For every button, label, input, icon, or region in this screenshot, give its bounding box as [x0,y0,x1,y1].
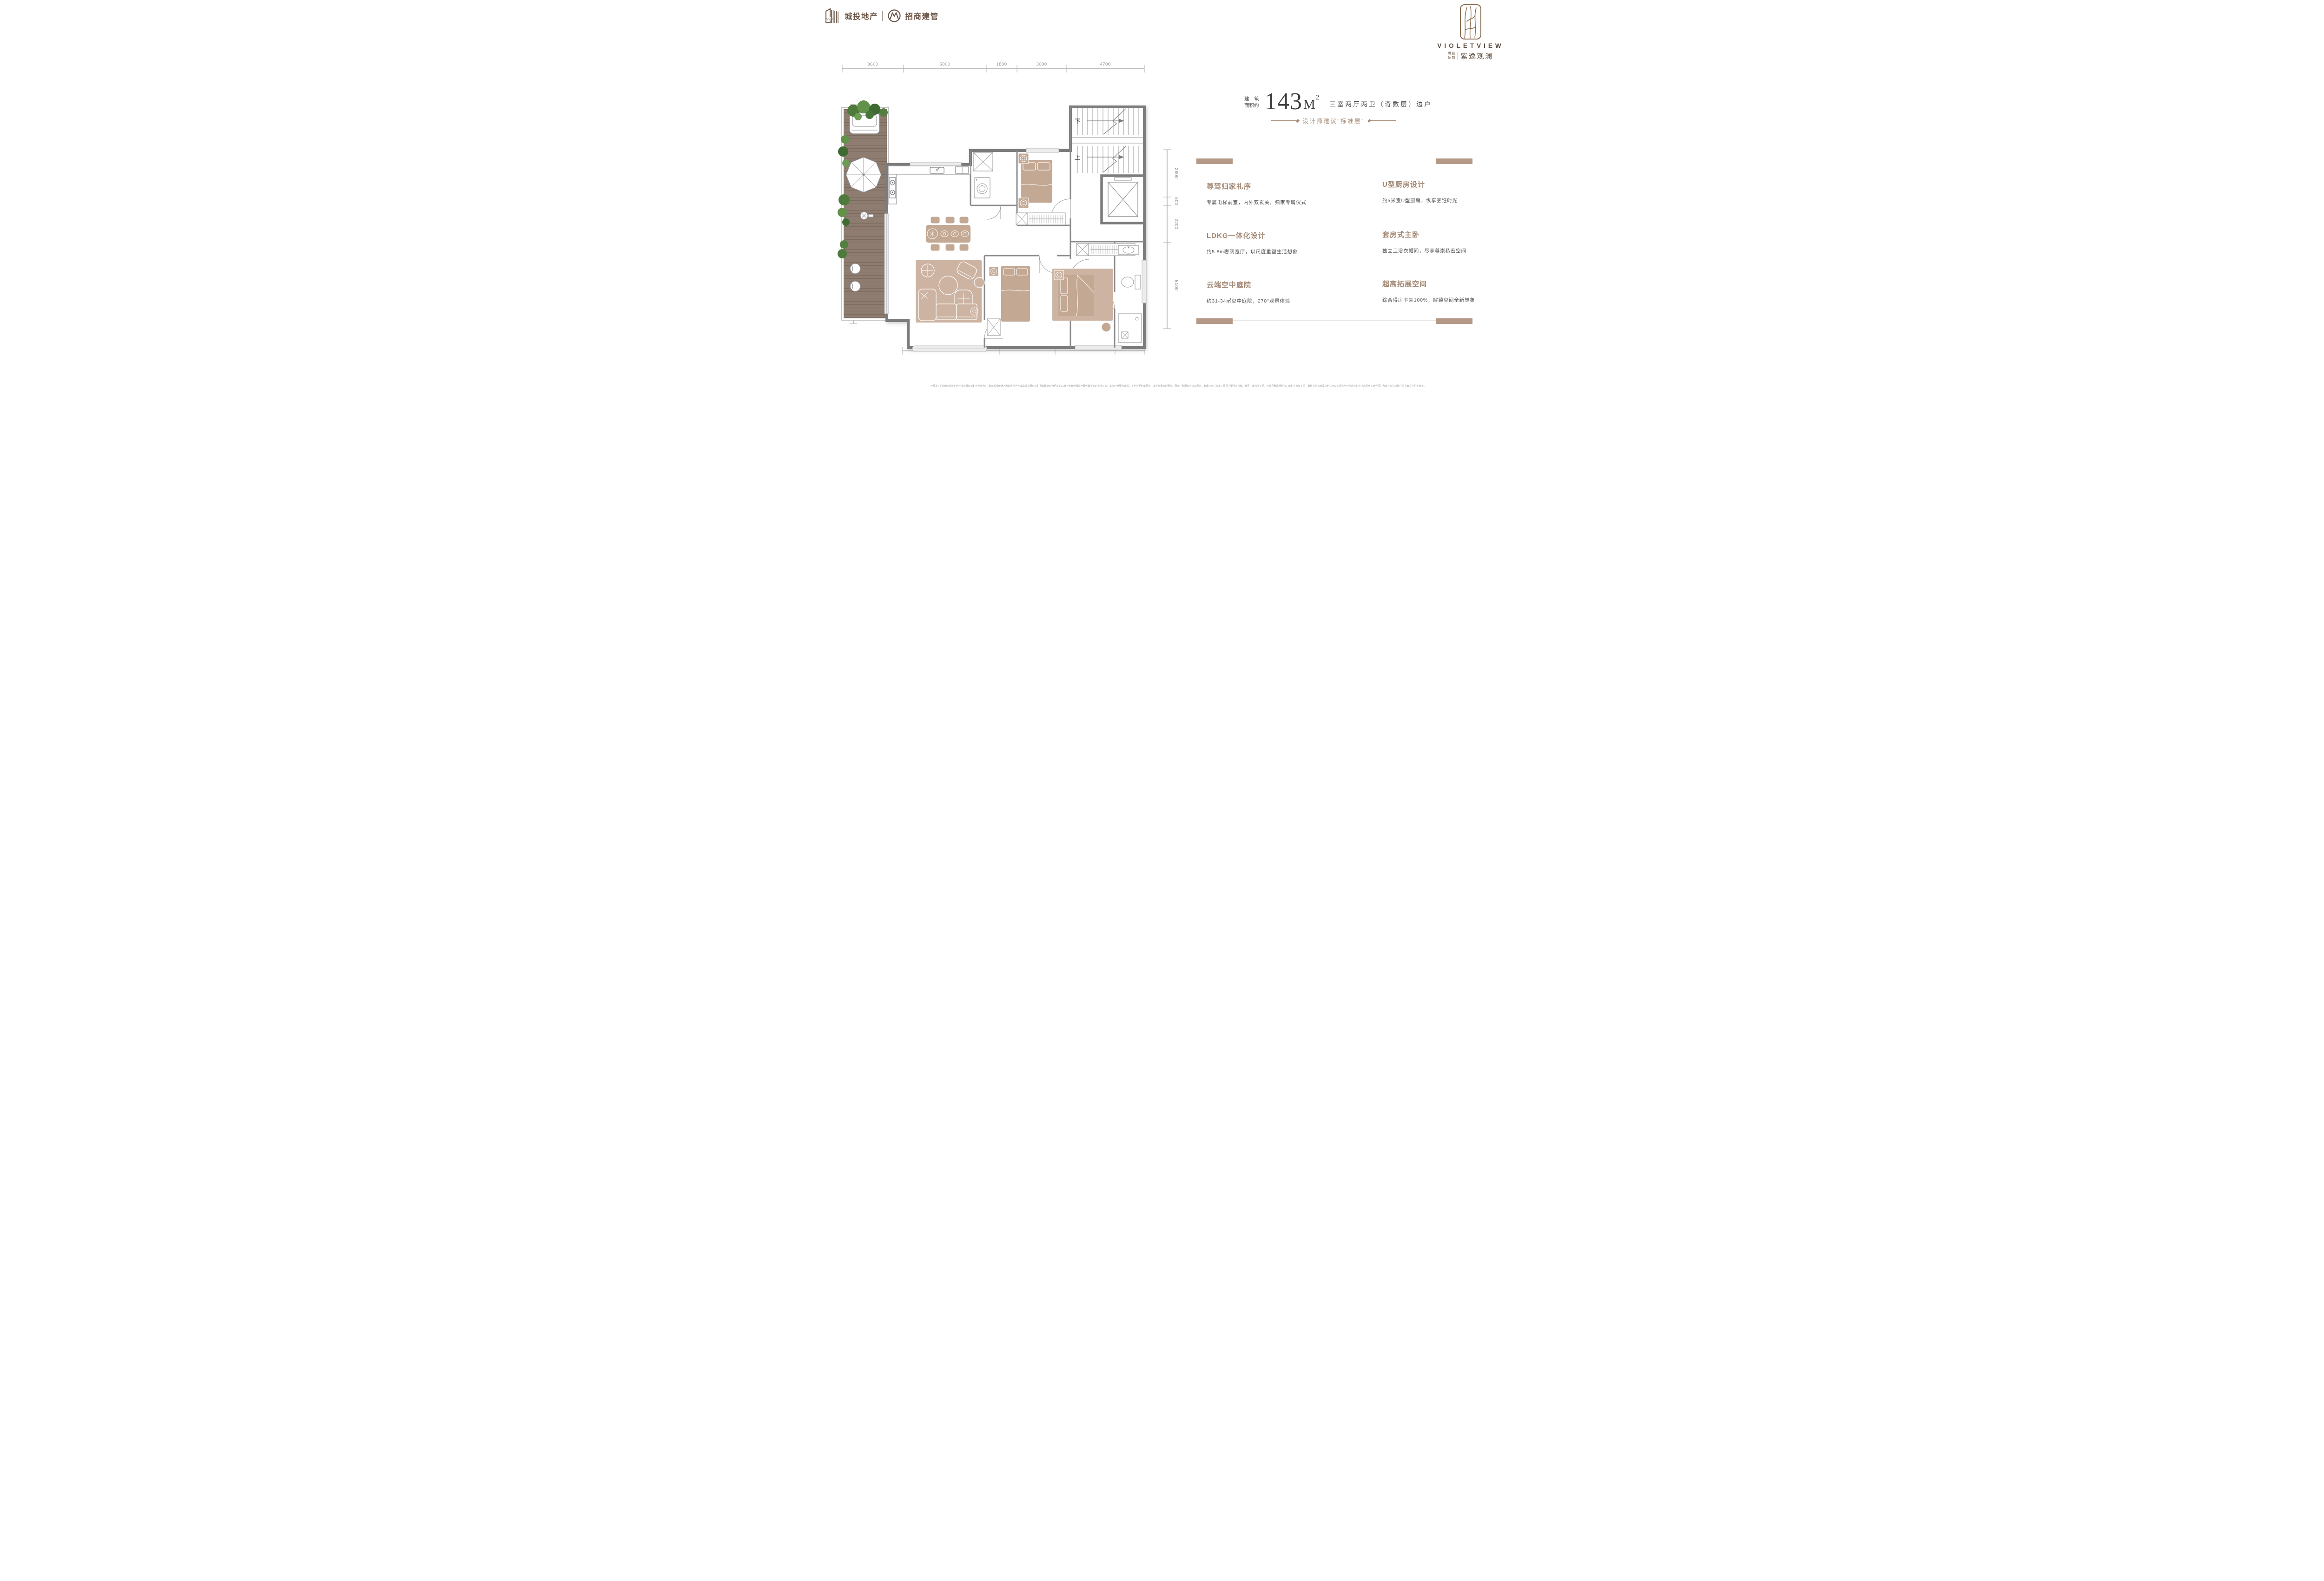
feature-desc: 独立卫浴衣帽间，尽享尊崇私密空间 [1382,247,1513,254]
dining-set [926,217,971,251]
feature-ldkg: LDKG一体化设计 约5.8m奢阔宽厅，以尺度重塑生活想象 [1207,231,1379,255]
dim-label: 3600 [867,62,878,67]
brand-sub-names: 城投 招商 [1448,52,1455,60]
feature-title: 云端空中庭院 [1207,280,1379,290]
dim-label: 2200 [1174,218,1179,229]
closet-icon [973,152,993,171]
stove-icon [889,178,896,198]
brand-divider [1458,52,1458,60]
umbrella-icon [846,157,881,192]
sink-icon [1118,245,1139,255]
wardrobe [1016,213,1065,225]
designer-note: 设计师建议“标准层” [1242,116,1425,125]
designer-note-text: 设计师建议“标准层” [1302,116,1364,125]
divider-line [1233,321,1436,321]
feature-title: 套房式主卧 [1382,230,1513,239]
logo-separator [882,11,883,21]
closet-icon [987,319,1000,336]
poster-canvas: CCCI 城投地产 招商建管 VIOLETVIEW 城投 招商 [811,0,1513,395]
living-set [916,260,984,323]
feature-title: U型厨房设计 [1382,179,1513,189]
elevator [1102,176,1144,223]
brand-logo: VIOLETVIEW 城投 招商 紫逸观澜 [1429,4,1512,61]
shower-icon [1118,314,1142,343]
divider-end-block [1196,158,1233,164]
feature-entry-sequence: 尊驾归家礼序 专属电梯前室，内外双玄关，归家专属仪式 [1207,181,1379,206]
feature-expansion-space: 超高拓展空间 综合得房率超100%，解锁空间全新想象 [1382,279,1513,303]
feature-desc: 专属电梯前室，内外双玄关，归家专属仪式 [1207,199,1379,206]
divider-bottom [1196,318,1472,324]
side-table [974,277,984,288]
ccci-building-icon: CCCI [825,7,840,24]
area-label: 建筑 面积约 [1244,96,1259,109]
area-headline: 建筑 面积约 143 M 2 三室两厅两卫（奇数层）边户 [1244,92,1432,112]
developer-name-2: 招商建管 [905,10,939,21]
feature-desc: 约31-34㎡空中庭院，270°观景体验 [1207,297,1379,304]
footer: 开展商：【长春城投房地产开发有限公司】开发商为：【长春城投伊通河改造房地产开发建… [931,384,1395,388]
ceiling-fan-icon [1018,198,1029,208]
feature-title: 尊驾归家礼序 [1207,181,1379,191]
ccci-text: CCCI [826,18,833,21]
dim-label: 500 [1174,197,1179,205]
dimension-top [842,65,1144,72]
note-line-left [1271,120,1298,121]
brand-name-cn: 紫逸观澜 [1460,51,1493,61]
bed [1021,160,1052,203]
washer-icon [974,178,990,198]
developer-logo: CCCI 城投地产 招商建管 [825,7,939,24]
area-value: 143 [1265,92,1302,112]
unit-type-line: 三室两厅两卫（奇数层）边户 [1329,99,1432,108]
dimension-top-labels: 3600 5000 1800 3000 4700 [867,62,1110,67]
feature-desc: 综合得房率超100%，解锁空间全新想象 [1382,296,1513,303]
divider-end-block [1436,318,1472,324]
disclaimer-text: 开展商：【长春城投房地产开发有限公司】开发商为：【长春城投伊通河改造房地产开发建… [931,384,1395,388]
dim-label: 3000 [1036,62,1047,67]
stair-down-label: 下 [1075,118,1080,125]
developer-name-1: 城投地产 [845,10,878,21]
ceiling-fan-icon [1054,270,1063,280]
divider-end-block [1436,158,1472,164]
feature-title: LDKG一体化设计 [1207,231,1379,240]
divider-line [1233,161,1436,161]
feature-desc: 约5米宽U型厨房，纵享烹饪时光 [1382,197,1513,204]
divider-end-block [1196,318,1233,324]
dim-label: 4700 [1100,62,1110,67]
floor-plan: 3600 5000 1800 3000 4700 2400 2600 2900 … [817,60,1182,367]
dimension-right-labels: 2800 500 2200 5100 [1174,168,1179,290]
feature-desc: 约5.8m奢阔宽厅，以尺度重塑生活想象 [1207,248,1379,255]
feature-u-kitchen: U型厨房设计 约5米宽U型厨房，纵享烹饪时光 [1382,179,1513,204]
terrace [838,100,889,320]
dim-label: 5100 [1174,280,1179,290]
dim-label: 2800 [1174,168,1179,178]
sink-icon [930,167,944,173]
cm-circle-m-icon [887,9,901,23]
note-line-right [1369,120,1396,121]
feature-suite-master: 套房式主卧 独立卫浴衣帽间，尽享尊崇私密空间 [1382,230,1513,254]
area-superscript: 2 [1316,94,1320,101]
dim-label: 5000 [939,62,950,67]
dim-label: 1800 [996,62,1007,67]
brand-name-en: VIOLETVIEW [1429,42,1512,49]
chair [1102,323,1111,332]
branch-emblem-icon [1459,4,1482,40]
dimension-right [1163,150,1171,329]
brand-name-cn-row: 城投 招商 紫逸观澜 [1429,51,1512,61]
stair-up-label: 上 [1075,154,1080,161]
area-unit: M [1303,98,1315,112]
feature-sky-courtyard: 云端空中庭院 约31-34㎡空中庭院，270°观景体验 [1207,280,1379,304]
ceiling-fan-icon [1018,153,1029,164]
divider-top [1196,158,1472,164]
bed [1001,266,1030,322]
feature-title: 超高拓展空间 [1382,279,1513,289]
fridge-icon [956,167,969,173]
ceiling-fan-icon [989,267,998,276]
